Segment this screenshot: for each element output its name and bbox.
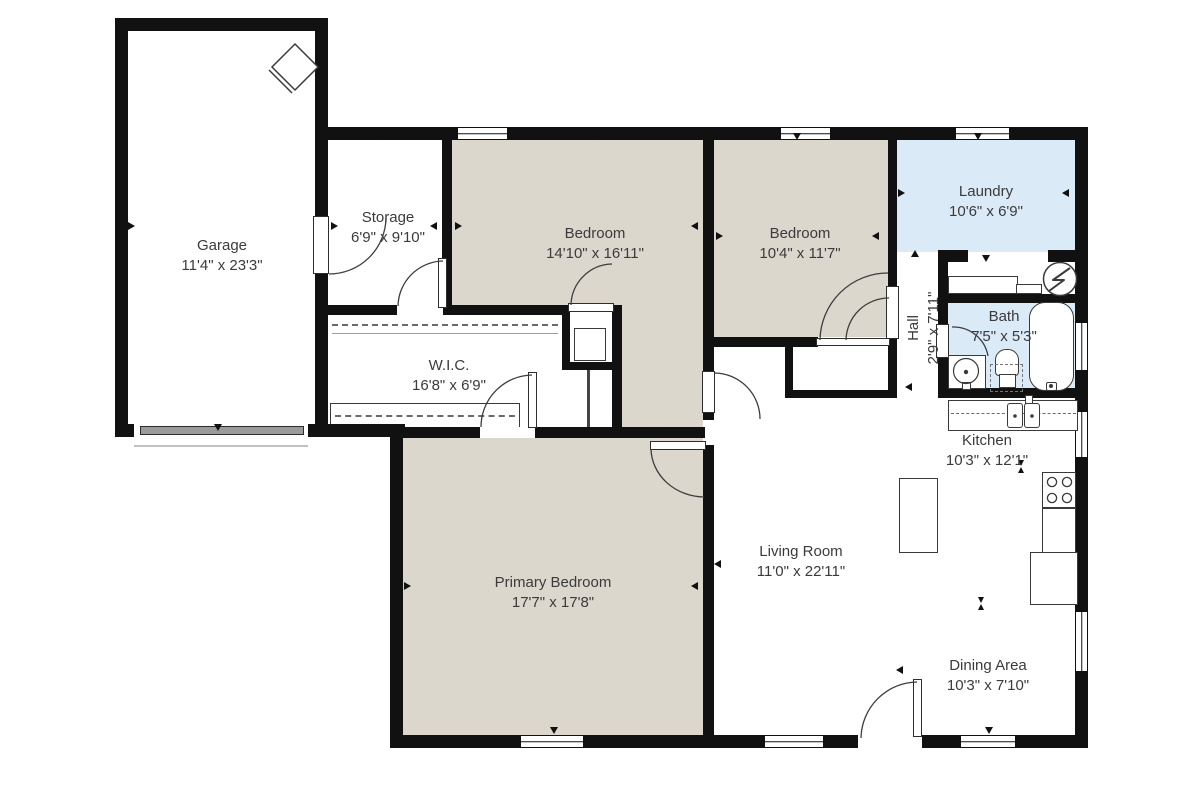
room-label-bath: Bath 7'5" x 5'3" [971, 307, 1037, 347]
door-swing-arc [715, 373, 760, 419]
room-dimensions: 10'3" x 7'10" [947, 676, 1029, 696]
room-dimensions: 14'10" x 16'11" [546, 244, 644, 264]
dimension-arrow [872, 232, 879, 240]
dimension-arrow [654, 429, 662, 436]
dimension-arrow [896, 666, 903, 674]
dimension-arrow [985, 727, 993, 734]
room-name: Bedroom [546, 224, 644, 244]
door-opening [480, 427, 535, 438]
wall [562, 312, 570, 368]
closet-shelf [574, 328, 606, 361]
dimension-arrow [404, 582, 411, 590]
window [780, 127, 831, 140]
window [1075, 322, 1088, 371]
wall [1048, 250, 1075, 262]
floor-plan-canvas: Garage 11'4" x 23'3" Storage 6'9" x 9'10… [0, 0, 1200, 800]
dimension-arrow [214, 424, 222, 431]
room-dimensions: 10'3" x 12'1" [946, 451, 1028, 471]
dimension-arrow [714, 560, 721, 568]
dimension-arrow [214, 22, 222, 29]
faucet-icon [962, 382, 971, 390]
wall [703, 337, 818, 347]
window [764, 735, 824, 748]
closet-shelf-edge [332, 333, 558, 334]
room-dimensions: 10'6" x 6'9" [949, 202, 1023, 222]
room-name: Bath [971, 307, 1037, 327]
dimension-marker [978, 597, 984, 603]
dimension-arrow [550, 727, 558, 734]
water-heater-icon [1044, 263, 1077, 296]
room-dimensions: 6'9" x 9'10" [351, 228, 425, 248]
room-name: Laundry [949, 182, 1023, 202]
dimension-arrow [898, 189, 905, 197]
wall [785, 390, 897, 398]
faucet-icon [1046, 382, 1057, 391]
wall [703, 412, 714, 420]
room-label-dining-area: Dining Area 10'3" x 7'10" [947, 656, 1029, 696]
wall [115, 18, 128, 437]
wall [612, 305, 622, 438]
door-swing-arc [861, 682, 917, 738]
window [1075, 611, 1088, 672]
dimension-arrow [716, 232, 723, 240]
kitchen-island [899, 478, 938, 553]
faucet-icon [1025, 395, 1033, 404]
door-leaf [650, 441, 706, 450]
room-name: Hall [904, 266, 924, 390]
kitchen-sink-basin [1007, 403, 1023, 428]
room-dimensions: 17'7" x 17'8" [495, 593, 612, 613]
room-label-living-room: Living Room 11'0" x 22'11" [757, 542, 845, 582]
wall [703, 347, 714, 372]
furnace-icon [272, 44, 318, 90]
room-dimensions: 10'4" x 11'7" [759, 244, 840, 264]
room-name: Bedroom [759, 224, 840, 244]
window [457, 127, 508, 140]
toilet-clearance-dashed [990, 364, 1023, 392]
room-dimensions: 11'4" x 23'3" [181, 256, 262, 276]
door-leaf [528, 372, 537, 428]
room-label-primary-bedroom: Primary Bedroom 17'7" x 17'8" [495, 573, 612, 613]
door-swing-arc [398, 261, 443, 306]
dimension-arrow [793, 133, 801, 140]
room-dimensions: 16'8" x 6'9" [412, 376, 486, 396]
utility-counter [1016, 284, 1042, 294]
dimension-arrow [128, 222, 135, 230]
wall [452, 305, 570, 315]
room-name: Dining Area [947, 656, 1029, 676]
dimension-arrow [455, 222, 462, 230]
window [955, 127, 1010, 140]
room-label-garage: Garage 11'4" x 23'3" [181, 236, 262, 276]
closet-rod [332, 324, 558, 326]
utility-counter [948, 276, 1018, 294]
door-leaf [438, 258, 447, 308]
kitchen-sink-basin [1024, 403, 1040, 428]
refrigerator [1030, 552, 1078, 605]
closet-door-leaf [816, 338, 890, 346]
dimension-arrow [377, 132, 385, 139]
room-label-bedroom2: Bedroom 10'4" x 11'7" [759, 224, 840, 264]
door-opening [397, 305, 443, 315]
dimension-arrow [691, 222, 698, 230]
furnace-icon [269, 70, 292, 93]
room-label-wic: W.I.C. 16'8" x 6'9" [412, 356, 486, 396]
dimension-arrow [430, 222, 437, 230]
dimension-arrow [911, 250, 919, 257]
dimension-arrow [691, 582, 698, 590]
kitchen-counter [1042, 508, 1076, 553]
room-dimensions: 11'0" x 22'11" [757, 562, 845, 582]
room-name: Living Room [757, 542, 845, 562]
room-name: Garage [181, 236, 262, 256]
wall [938, 250, 968, 262]
front-door-leaf [913, 679, 922, 737]
dimension-arrow [331, 222, 338, 230]
wic-divider [587, 368, 590, 427]
room-label-bedroom1: Bedroom 14'10" x 16'11" [546, 224, 644, 264]
dimension-arrow [982, 255, 990, 262]
door-leaf [702, 371, 715, 413]
room-label-storage: Storage 6'9" x 9'10" [351, 208, 425, 248]
wall [703, 445, 714, 735]
dimension-arrow [1062, 189, 1069, 197]
dimension-arrow [589, 133, 597, 140]
bedroom1-floor-lower [622, 310, 703, 428]
stove-icon [1042, 472, 1076, 508]
wall [703, 127, 714, 347]
room-name: Kitchen [946, 431, 1028, 451]
dimension-arrow [974, 133, 982, 140]
dimension-marker [978, 604, 984, 610]
wall [888, 140, 897, 287]
room-name: Primary Bedroom [495, 573, 612, 593]
driveway-edge [134, 445, 308, 447]
door-leaf [313, 216, 329, 274]
room-dimensions: 2'9" x 7'11" [924, 266, 944, 390]
garage-door [140, 426, 304, 435]
closet-rod [335, 415, 515, 417]
lightning-bolt-icon [1049, 268, 1070, 291]
wall [390, 424, 403, 748]
room-label-kitchen: Kitchen 10'3" x 12'1" [946, 431, 1028, 471]
room-label-hall: Hall 2'9" x 7'11" [895, 266, 953, 390]
wall [562, 362, 620, 370]
wall [938, 294, 1088, 303]
door-leaf [568, 303, 614, 312]
window [960, 735, 1016, 748]
window [520, 735, 584, 748]
room-label-laundry: Laundry 10'6" x 6'9" [949, 182, 1023, 222]
room-name: Storage [351, 208, 425, 228]
room-dimensions: 7'5" x 5'3" [971, 327, 1037, 347]
room-name: W.I.C. [412, 356, 486, 376]
